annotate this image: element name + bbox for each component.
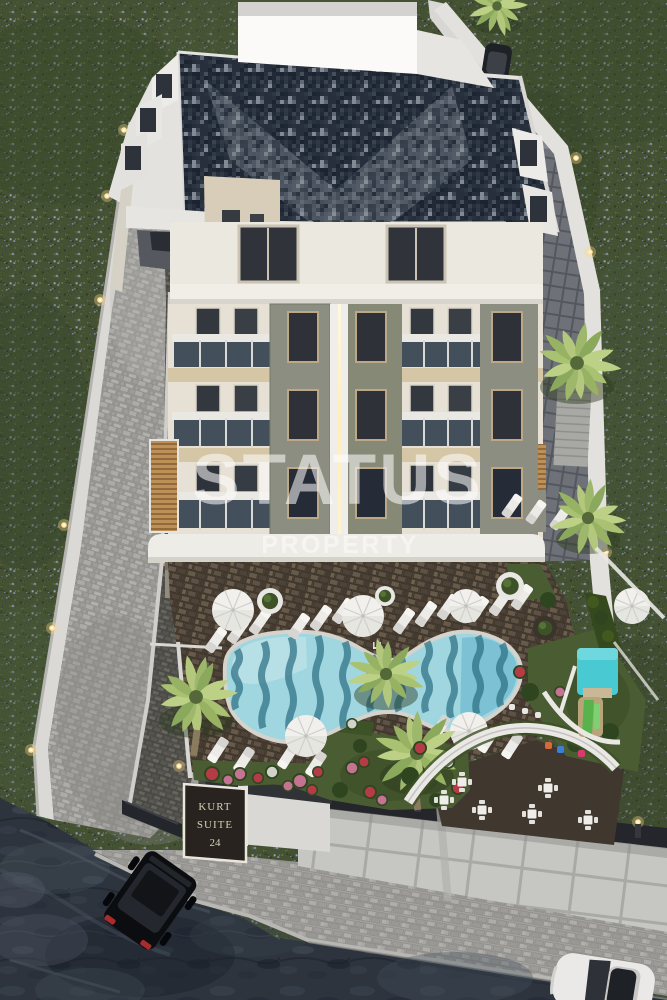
svg-text:STATUS: STATUS [192,441,483,520]
svg-text:KURT: KURT [198,801,231,813]
svg-text:PROPERTY: PROPERTY [261,531,419,559]
svg-text:24: 24 [210,837,222,849]
svg-text:SUITE: SUITE [197,819,233,831]
